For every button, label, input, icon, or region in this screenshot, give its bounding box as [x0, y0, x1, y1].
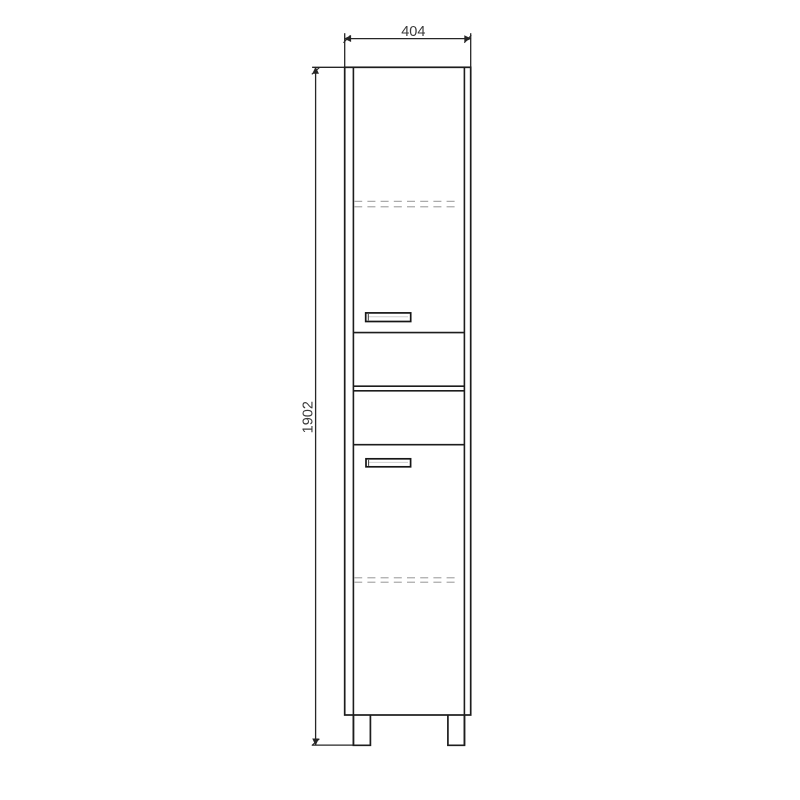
svg-text:404: 404: [401, 24, 425, 40]
svg-text:1902: 1902: [301, 401, 317, 433]
